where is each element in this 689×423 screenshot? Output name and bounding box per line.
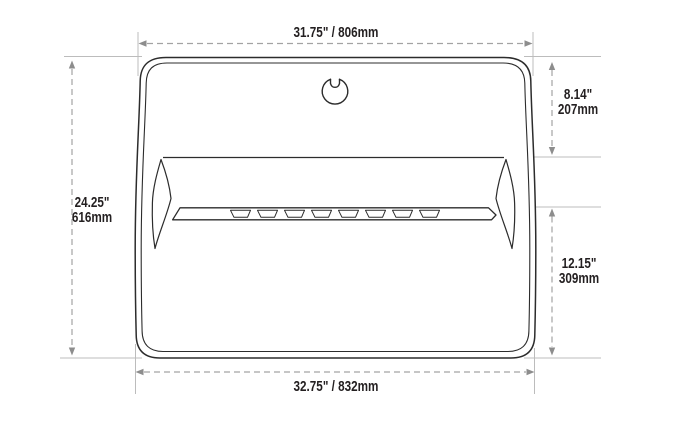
dimension-label-right-lower: 12.15" 309mm [552, 257, 607, 286]
handle-bar-outline [173, 208, 496, 220]
handle-bar [173, 208, 496, 220]
dimension-label-left-height: 24.25" 616mm [65, 196, 120, 225]
arrow-down-icon [549, 348, 555, 356]
dimension-right-lower-mm: 309mm [552, 272, 607, 287]
dimension-label-bottom-width: 32.75" / 832mm [258, 380, 414, 395]
arrow-left-icon [139, 40, 147, 46]
dimension-label-right-upper: 8.14" 207mm [551, 88, 606, 117]
arrow-right-icon [527, 369, 535, 375]
arrow-up-icon [69, 61, 75, 69]
dimension-line-top-width [139, 40, 533, 46]
arrow-up-icon [549, 209, 555, 217]
arrow-up-icon [549, 62, 555, 70]
dimension-right-upper-mm: 207mm [551, 103, 606, 118]
arrow-left-icon [136, 369, 144, 375]
dimension-line-bottom-width [136, 369, 535, 375]
arrow-right-icon [525, 40, 533, 46]
dimension-label-top-width: 31.75" / 806mm [258, 26, 414, 41]
arrow-down-icon [69, 348, 75, 356]
dimension-diagram: 31.75" / 806mm 32.75" / 832mm 24.25" 616… [0, 0, 689, 423]
dimension-left-mm: 616mm [65, 211, 120, 226]
arrow-down-icon [549, 147, 555, 155]
